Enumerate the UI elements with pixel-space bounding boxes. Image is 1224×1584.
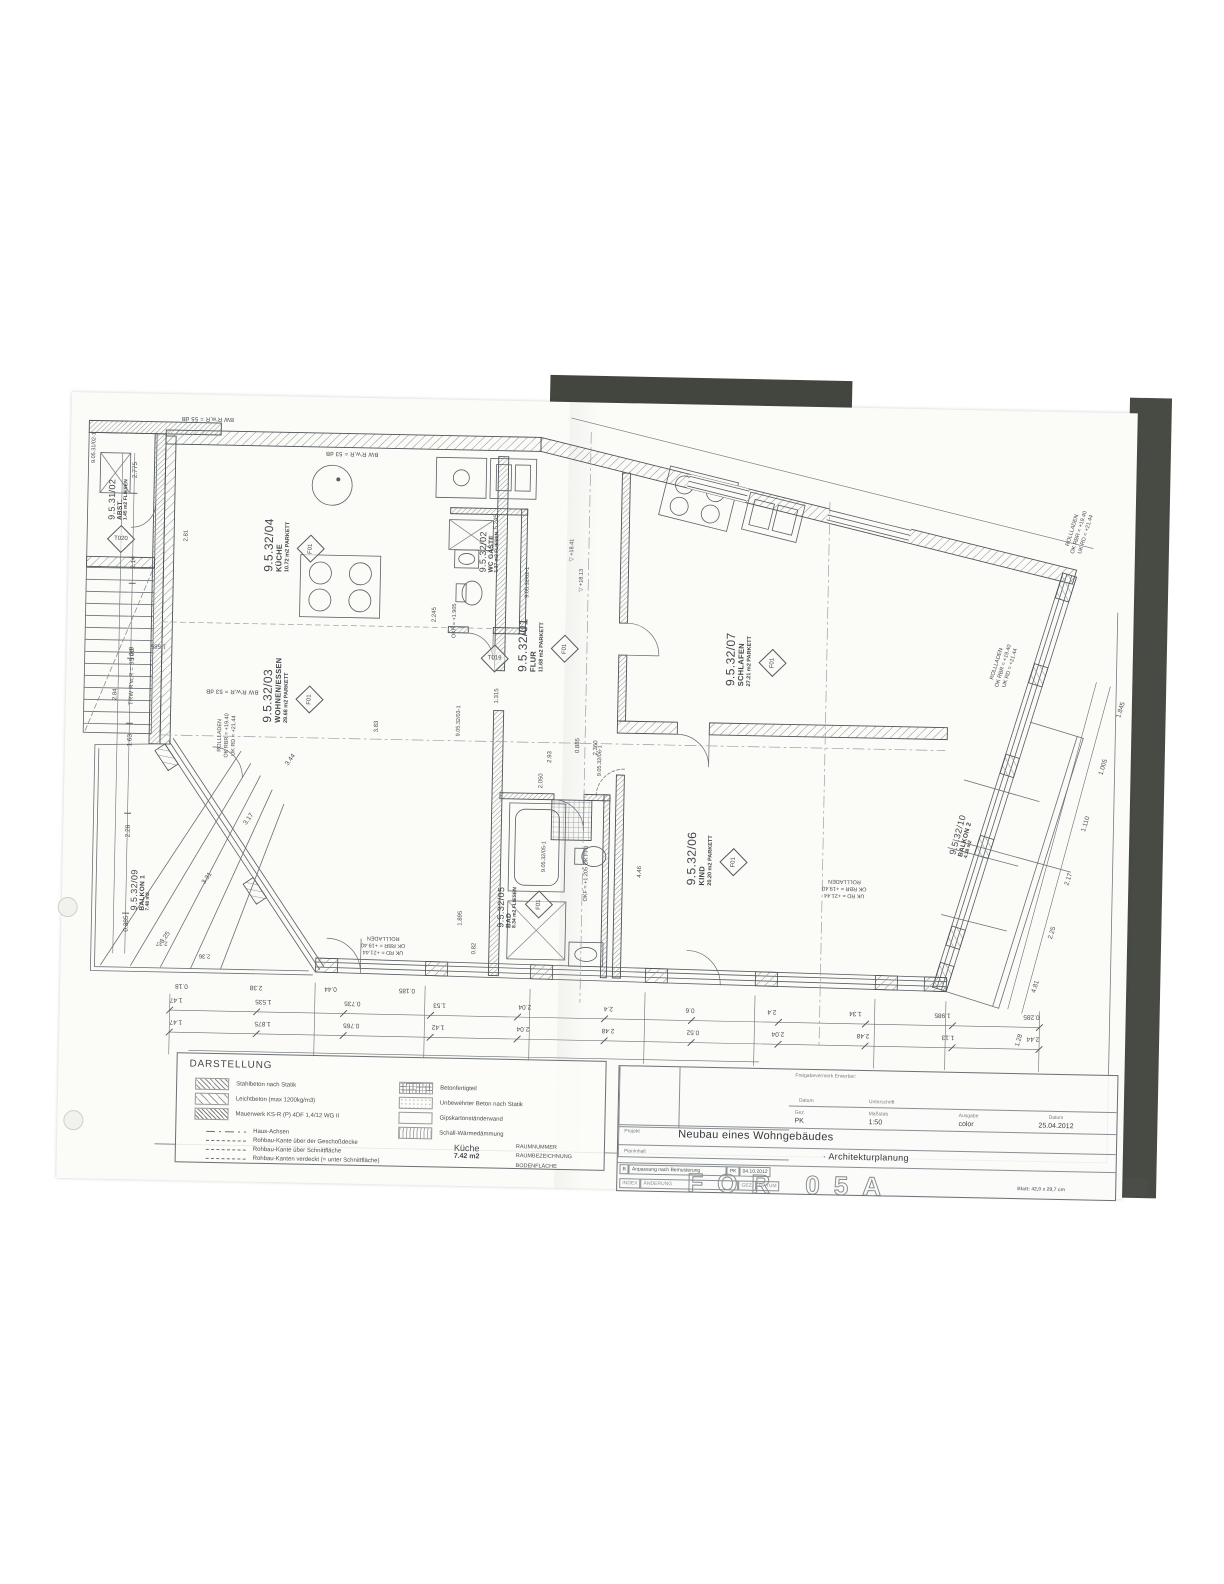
legend-item: Schall-Wärmedämmung [398,1127,504,1141]
dim-value: 2.28 [125,825,132,838]
planinhalt-label: Planinhalt [624,1148,646,1154]
dim: 1.895 [458,911,465,926]
dim: 4.46 [637,866,644,878]
level-mark: OKF = +1.905 [451,603,458,638]
room-label-wohnen-essen: 9.5.32/03 WOHNEN/ESSEN 29.68 m2 PARKETT … [261,657,320,723]
dim-value: 0.52 [687,1028,700,1035]
dim-value: 0.385 [123,915,130,931]
revision-header-row: INDEX ÄNDERUNG GEZ. DATUM [619,1178,780,1191]
room-label-kind: 9.5.32/06 KIND 20.20 m2 PARKETT F01 [685,832,744,887]
southwest-window-band [151,738,329,972]
dim-value: 1.985 [934,1011,950,1018]
dim: 0.82 [471,943,478,955]
line-sample [206,1130,246,1132]
dim: 2.37 [156,939,168,946]
dim-value: 2.775 [132,462,139,478]
dim-value: 2.04 [517,1025,530,1032]
hatch-swatch [194,1108,228,1121]
rollladen-note: UK RD = +21.44OK RBR = +19.40ROLLLADEN [822,877,867,899]
dim-value: 1.63 [126,734,133,747]
sound-insulation-note: BW R'w,R = 53 dB [206,687,259,695]
dim: 1.585 [151,642,166,649]
legend-line-item: Rohbau-Kante über der Geschoßdecke [206,1137,358,1146]
rollladen-note: UK RD = +21.44OK RBR = +19.40ROLLLADEN [361,934,406,956]
room-meta: 7.48 m2 [146,892,152,910]
door-tag: 9.05.32/05-1 [541,841,548,872]
revision-row: B Anpassung nach Bemusterung PK 04.10.20… [619,1164,770,1177]
dim-value: 1.47 [170,996,183,1003]
legend-line-item: Haus-Achsen [206,1128,289,1136]
dim: 5.245 [493,514,500,529]
hatch-swatch [195,1078,229,1091]
dim-value: 0.44 [324,985,337,992]
rollladen-note: ROLLLADENOK RBR = +19.40UK RD = +21.44 [217,713,239,758]
hatch-swatch [399,1097,433,1110]
datum2-label: Datum [1049,1115,1064,1121]
legend-item: Unbewehrter Beton nach Statik [399,1097,523,1111]
legend-item: Gipskartonständerwand [398,1112,503,1126]
hatch-swatch [398,1112,432,1125]
room-label-flur: 9.5.32/01 FLUR 11.68 m2 PARKETT F01 [516,618,575,673]
room-label-bad: 9.5.32/05 BAD 8.34 m2 FLIESEN F01 [495,887,549,929]
dim: 2.245 [432,607,439,622]
dim-value: 2.44 [1026,1035,1039,1042]
room-meta: 27.21 m2 PARKETT [746,636,753,686]
legend-sample-room: Küche 7.42 m2 [454,1143,480,1161]
room-meta: 10.72 m2 PARKETT [284,522,291,572]
legend-item: Mauerwerk KS-R (P) 4DF 1,4/12 WG II [194,1108,339,1123]
room-meta: 8.34 m2 FLIESEN [513,887,519,928]
ausgabe-value: color [958,1121,973,1128]
dim-value: 2.04 [772,1030,785,1037]
door-tag: 9.05.31/02-1 [91,432,98,463]
dim: 2.36 [199,952,211,959]
dim-value: 1.53 [433,1001,446,1008]
projekt-label: Projekt [624,1128,640,1134]
legend-item: Stahlbeton nach Statik [195,1078,296,1092]
room-meta: 29.68 m2 PARKETT [283,673,290,723]
freigabevermerk-label: Freigabevermerk Erwerber: [795,1073,856,1080]
hatch-swatch [398,1127,432,1140]
planinhalt-value: · Architekturplanung [823,1151,909,1163]
room-meta: 11.68 m2 PARKETT [538,622,545,672]
dim-value: 0.9 [128,647,135,656]
dim: 0.885 [575,738,582,753]
sheet-size-note: Blatt: 42,0 x 29,7 cm [1017,1186,1065,1193]
dim-value: 2.48 [602,1027,615,1034]
room-meta: 1.37 m2 FLIESEN [495,532,501,573]
legend-item: Betonfertigteil [399,1082,477,1096]
dim: 2.84 [112,688,119,700]
dim-value: 1.13 [942,1034,955,1041]
dim-value: 2.48 [857,1032,870,1039]
level-mark: ▽ +18.13 [578,569,585,592]
ausgabe-label: Ausgabe [959,1113,979,1119]
dim-value: 0.765 [343,1022,359,1029]
gez-label: Gez. [795,1110,806,1116]
dim-value: 2.4 [767,1008,776,1015]
sound-insulation-note: BW R'w,R = 55 dB [181,414,234,422]
hatch-swatch [399,1082,433,1095]
level-mark: ▽ +18.41 [569,539,576,562]
room-meta: 20.20 m2 PARKETT [707,835,714,885]
room-label-abstellraum: 9.5.31/02 ABST. 1.45 m2 FLIESEN [107,479,131,521]
gez-value: PK [794,1118,803,1125]
dim-value: 2.4 [604,1005,613,1012]
title-block: Freigabevermerk Erwerber: Datum Untersch… [616,1065,1118,1201]
dim-value: 1.42 [432,1023,445,1030]
room-meta: 1.45 m2 FLIESEN [124,479,130,520]
room-label-schlafen: 9.5.32/07 SCHLAFEN 27.21 m2 PARKETT F01 [724,632,783,687]
room-label-kueche: 9.5.32/04 KÜCHE 10.72 m2 PARKETT F01 [262,518,321,573]
door-tag: 9.05.32/03-1 [456,705,463,736]
dim: 3.83 [374,721,381,733]
dim-value: 2.38 [250,984,263,991]
door-tag: 9.05.32/02-1 [524,567,531,598]
line-sample [206,1139,246,1141]
sound-insulation-note: BW R'w,R = 53 dB [326,449,379,457]
dim-value: 1.875 [254,1020,270,1027]
datum-label: Datum [799,1098,814,1104]
dim: 2.360 [593,740,600,755]
room-label-balkon-1: 9.5.32/09 BALKON 1 7.48 m2 [129,869,153,911]
unterschrift-label: Unterschrift [869,1099,895,1106]
dim-value: 0.6 [686,1006,695,1013]
legend-title: DARSTELLUNG [189,1058,272,1071]
line-sample [206,1157,246,1159]
drawing-sheet: 9.5.32/04 KÜCHE 10.72 m2 PARKETT F01 9.5… [56,392,1138,1199]
massstab-value: 1:50 [868,1119,882,1126]
legend-line-item: Rohbau-Kanten verdeckt (= unter Schnittf… [206,1155,380,1164]
datum-value: 25.04.2012 [1038,1123,1073,1131]
legend-box: DARSTELLUNG Stahlbeton nach Statik Leich… [175,1052,607,1171]
party-walls [83,420,221,745]
dim-value: 0.735 [344,1000,360,1007]
hatch-swatch [195,1093,229,1106]
legend-sample-labels: RAUMNUMMERRAUMBEZEICHNUNGBODENFLÄCHE [515,1143,572,1172]
dim-value: 0.18 [175,982,188,989]
dim-value: 2.04 [518,1003,531,1010]
line-sample [206,1148,246,1150]
level-mark: OKF = +1.205 OK FFB [583,845,590,901]
massstab-label: Maßstab [869,1111,889,1117]
dim-value: 1.535 [255,998,271,1005]
dim: 2.81 [184,530,191,542]
dim: 1.315 [494,688,501,703]
dim-value: 2.14 [130,556,137,569]
dim-value: 1.47 [169,1018,182,1025]
dim-value: 0.185 [399,987,415,994]
dim: 2.93 [547,751,554,763]
legend-item: Leichtbeton (max 1200kg/m3) [195,1093,316,1107]
dim: 2.050 [538,773,545,788]
dim-value: 1.34 [849,1010,862,1017]
room-label-wc-gaeste: 9.5.32/02 WC GÄSTE 1.37 m2 FLIESEN [478,531,502,573]
legend-line-item: Rohbau-Kante über Schnittfläche [206,1146,341,1155]
